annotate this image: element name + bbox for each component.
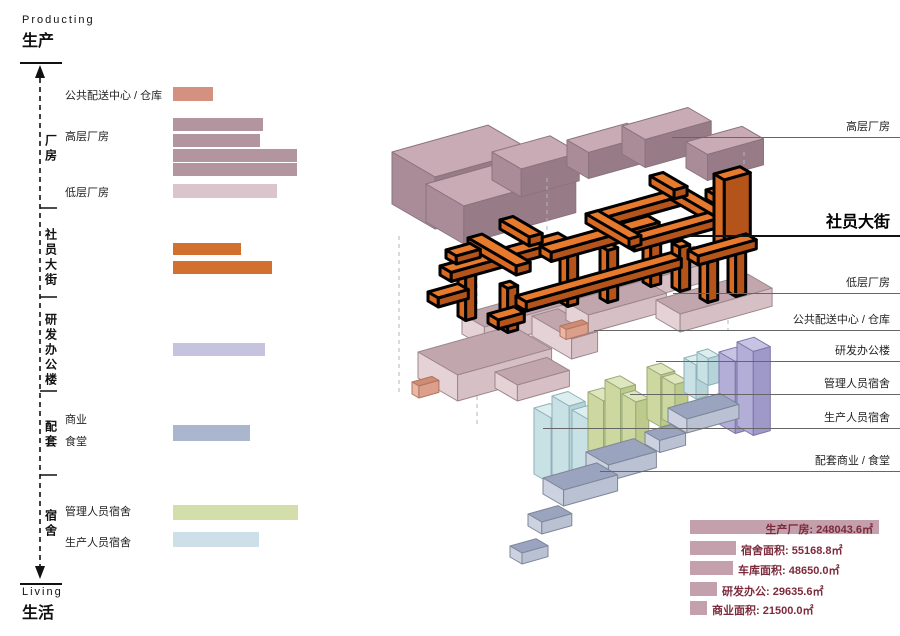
stat-bar-dormitory: [690, 541, 736, 555]
bar-highrise-2: [173, 134, 260, 147]
callout-commercial-canteen: 配套商业 / 食堂: [600, 452, 900, 472]
bar-rnd-office: [173, 343, 265, 356]
axis-arrow-up-icon: [35, 65, 45, 78]
bar-worker-dorm: [173, 532, 259, 547]
callout-manager-dorm: 管理人员宿舍: [630, 375, 900, 395]
row-label-distribution-warehouse: 公共配送中心 / 仓库: [65, 87, 162, 103]
axis-section-2: 研发办公楼: [41, 304, 61, 396]
bar-street-1: [173, 243, 241, 255]
architecture-program-diagram: Producting 生产 Living 生活 厂房社员大街研发办公楼配套宿舍 …: [0, 0, 900, 636]
callout-distribution-warehouse: 公共配送中心 / 仓库: [594, 311, 900, 331]
stat-text-dormitory: 宿舍面积: 55168.8㎡: [741, 542, 842, 558]
bar-commercial-canteen: [173, 425, 250, 441]
bar-highrise-4: [173, 163, 297, 176]
street-deck-segment: [516, 262, 530, 275]
bar-highrise-1: [173, 118, 263, 131]
row-label-commercial: 商业: [65, 411, 87, 427]
row-label-lowrise-factory: 低层厂房: [65, 184, 109, 200]
axis-top-label-zh: 生产: [22, 27, 95, 51]
street-deck-segment: [529, 233, 542, 246]
axis-section-3: 配套: [41, 412, 61, 458]
bar-distribution-warehouse: [173, 87, 213, 101]
row-label-worker-dorm: 生产人员宿舍: [65, 534, 131, 550]
stat-bar-rnd: [690, 582, 717, 596]
stat-bar-commercial: [690, 601, 707, 615]
row-label-manager-dorm: 管理人员宿舍: [65, 503, 131, 519]
axis-top-caption: Producting 生产: [22, 14, 95, 51]
axis-bottom-caption: Living 生活: [22, 586, 63, 623]
axis-bottom-label-zh: 生活: [22, 599, 63, 623]
axis-section-0: 厂房: [41, 118, 61, 180]
callout-rnd-office: 研发办公楼: [656, 342, 900, 362]
axis-section-1: 社员大街: [41, 220, 61, 296]
stat-text-garage: 车库面积: 48650.0㎡: [738, 562, 839, 578]
stat-bar-garage: [690, 561, 733, 575]
bar-highrise-3: [173, 149, 297, 162]
street-deck-segment: [629, 236, 641, 248]
callout-shyuan-street: 社员大街: [686, 208, 900, 237]
axis-section-4: 宿舍: [41, 499, 61, 549]
callout-lowrise-factory: 低层厂房: [673, 274, 900, 294]
callout-highrise-factory: 高层厂房: [672, 118, 900, 138]
stat-text-factory: 生产厂房: 248043.6㎡: [690, 521, 873, 537]
street-deck-segment: [674, 186, 687, 199]
axis-bottom-label-en: Living: [22, 586, 63, 598]
stat-text-commercial: 商业面积: 21500.0㎡: [712, 602, 813, 618]
axis-top-label-en: Producting: [22, 14, 95, 26]
row-label-highrise-factory: 高层厂房: [65, 128, 109, 144]
bar-manager-dorm: [173, 505, 298, 520]
row-label-canteen: 食堂: [65, 433, 87, 449]
bar-lowrise: [173, 184, 277, 198]
axis-arrow-down-icon: [35, 566, 45, 579]
stat-text-rnd: 研发办公: 29635.6㎡: [722, 583, 823, 599]
callout-worker-dorm: 生产人员宿舍: [543, 409, 900, 429]
bar-street-2: [173, 261, 272, 274]
